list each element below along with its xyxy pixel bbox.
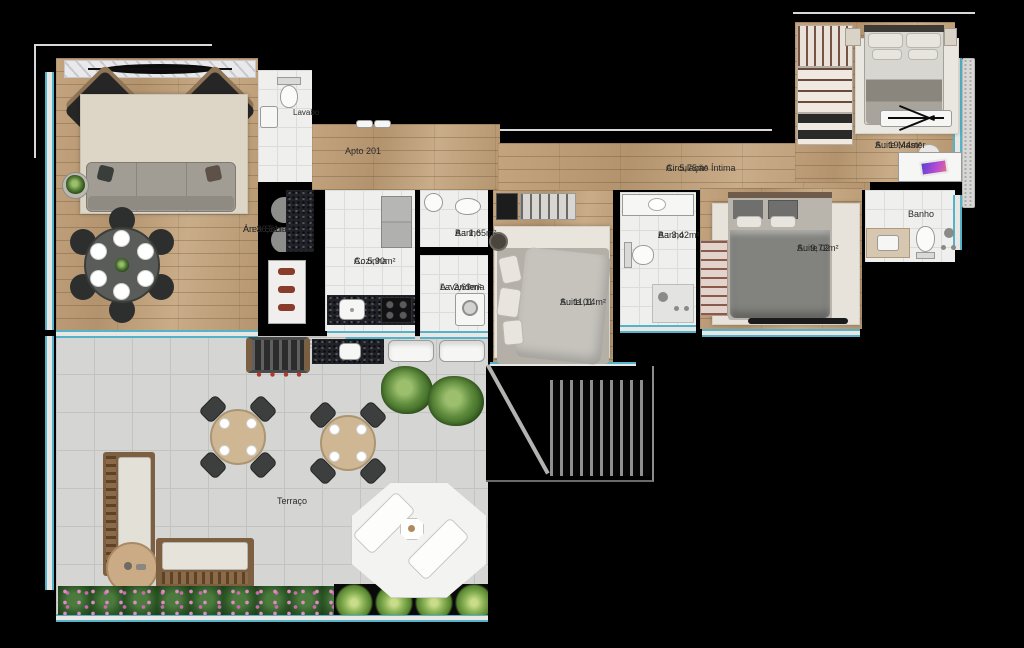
toilet-tank — [277, 77, 301, 85]
pergola-slats — [550, 380, 650, 476]
toilet-bowl — [455, 198, 481, 215]
table-centerpiece — [115, 258, 129, 272]
plate — [219, 445, 230, 456]
nightstand — [845, 28, 861, 46]
closet-rack — [700, 240, 728, 316]
bench-slats — [162, 572, 248, 584]
pillow — [868, 33, 903, 48]
closet-shoes — [797, 67, 853, 113]
wine-bottle — [278, 286, 295, 293]
shower-knob — [941, 245, 946, 250]
wine-bottle — [278, 304, 295, 311]
plate — [356, 451, 367, 462]
shower-head — [658, 292, 668, 302]
window-sill — [962, 58, 975, 208]
plate — [329, 451, 340, 462]
toilet-bowl — [916, 226, 935, 252]
washer-door — [462, 300, 478, 316]
terrace-bench — [439, 340, 485, 362]
window — [620, 325, 696, 333]
toilet-tank — [624, 242, 632, 268]
vanity-basin — [877, 235, 899, 251]
toilet-tank — [916, 252, 935, 259]
table-items — [124, 562, 132, 570]
sofa-pillow-right — [205, 165, 223, 183]
bar-stool — [271, 197, 286, 223]
tv-stand-line — [88, 68, 232, 70]
flower-bed — [58, 586, 334, 615]
terrace-table — [210, 409, 266, 465]
bar-counter — [286, 190, 314, 254]
toilet-bowl — [280, 85, 298, 108]
plate — [329, 424, 340, 435]
bbq-knobs — [254, 372, 304, 377]
shower-area — [652, 284, 694, 323]
plant-pot — [66, 175, 85, 194]
floor-plan: Lavabo Apto 201 Área Social A.: 36,51m² … — [0, 0, 1024, 648]
window — [56, 614, 488, 622]
plate — [219, 418, 230, 429]
terrace-table — [320, 415, 376, 471]
pillow — [496, 287, 522, 319]
plate — [90, 243, 107, 260]
terrace-bench — [388, 340, 434, 362]
sofa-backrest — [88, 196, 234, 210]
window — [56, 330, 258, 338]
bbq-grill — [246, 337, 310, 373]
wall-outline — [34, 44, 36, 158]
lavabo-sink — [260, 106, 278, 128]
tv-master — [888, 117, 944, 119]
pillow — [770, 216, 796, 228]
bench-cushion — [162, 542, 248, 570]
plate — [137, 270, 154, 287]
plant-pot — [428, 376, 484, 426]
window — [420, 331, 488, 339]
plate — [90, 270, 107, 287]
fridge — [381, 196, 412, 248]
kitchen-sink-drain — [350, 308, 354, 312]
terrace-sink — [339, 343, 361, 360]
floor-hall — [312, 124, 500, 190]
entry-door-leaf — [356, 120, 373, 128]
plate — [137, 243, 154, 260]
wall-outline — [36, 44, 212, 46]
closet-storage — [797, 113, 853, 145]
plate — [246, 418, 257, 429]
entry-door-leaf — [374, 120, 391, 128]
stove — [381, 297, 412, 323]
wine-bottle — [278, 268, 295, 275]
window — [702, 329, 860, 337]
window — [45, 72, 54, 330]
pillow — [736, 216, 762, 228]
closet-cabinet — [496, 193, 518, 220]
window — [953, 195, 962, 250]
pillow — [502, 319, 524, 346]
shower-knob — [684, 306, 689, 311]
headboard — [864, 25, 944, 32]
window — [45, 336, 54, 590]
pillow — [908, 49, 938, 60]
plate — [246, 445, 257, 456]
shower-knob — [674, 306, 679, 311]
wall-outline — [500, 129, 772, 131]
vanity-basin — [648, 198, 666, 211]
plate — [113, 230, 130, 247]
nightstand — [944, 28, 957, 46]
pillow — [872, 49, 902, 60]
closet-rack — [520, 193, 576, 220]
headboard — [728, 192, 832, 198]
wall-outline — [793, 12, 975, 14]
gazebo-table-dot — [408, 525, 415, 532]
shower-head — [944, 228, 954, 238]
plate — [356, 424, 367, 435]
round-sink — [424, 193, 443, 212]
table-items — [136, 564, 146, 570]
plate — [113, 283, 130, 300]
plant-pot — [381, 366, 433, 414]
shower-knob — [951, 245, 956, 250]
pillow — [906, 33, 941, 48]
toilet-bowl — [632, 245, 654, 265]
tv-bar — [748, 318, 848, 324]
